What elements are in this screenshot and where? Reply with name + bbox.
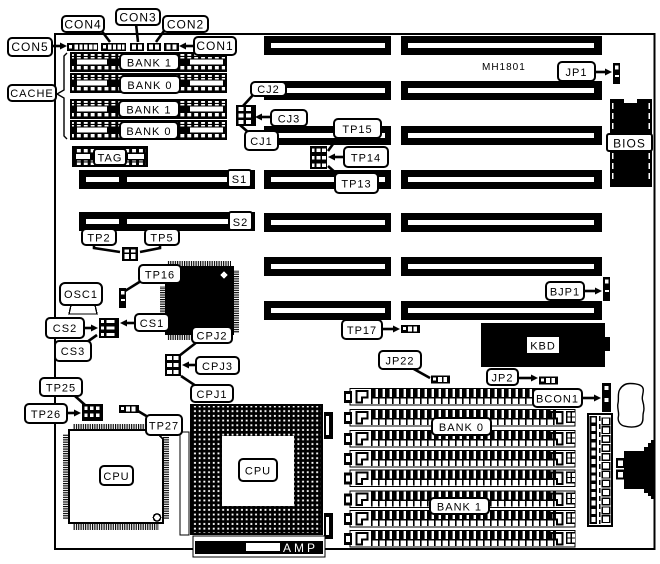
svg-text:CJ2: CJ2 bbox=[257, 84, 280, 96]
svg-text:AMP: AMP bbox=[283, 541, 318, 555]
svg-text:JP22: JP22 bbox=[385, 356, 414, 368]
svg-text:TP5: TP5 bbox=[150, 233, 173, 245]
svg-text:BANK 0: BANK 0 bbox=[439, 422, 484, 434]
svg-text:CACHE: CACHE bbox=[10, 88, 54, 100]
svg-text:TP25: TP25 bbox=[46, 383, 76, 395]
svg-text:CPJ1: CPJ1 bbox=[197, 389, 228, 401]
svg-text:CON2: CON2 bbox=[167, 18, 204, 32]
svg-text:S1: S1 bbox=[232, 174, 247, 186]
svg-text:CJ3: CJ3 bbox=[278, 114, 301, 126]
svg-text:TAG: TAG bbox=[98, 153, 123, 165]
svg-text:BANK 1: BANK 1 bbox=[437, 502, 482, 514]
svg-text:KBD: KBD bbox=[530, 341, 556, 353]
svg-text:MH1801: MH1801 bbox=[482, 62, 526, 73]
svg-text:CPJ2: CPJ2 bbox=[197, 331, 228, 343]
svg-text:TP27: TP27 bbox=[149, 421, 179, 433]
svg-text:BCON1: BCON1 bbox=[536, 394, 579, 406]
svg-text:BANK 0: BANK 0 bbox=[127, 80, 172, 92]
svg-text:CS1: CS1 bbox=[140, 318, 164, 330]
svg-text:JP1: JP1 bbox=[566, 67, 588, 79]
svg-text:CS3: CS3 bbox=[61, 346, 85, 358]
svg-text:CPU: CPU bbox=[245, 466, 271, 478]
svg-text:CON4: CON4 bbox=[64, 18, 101, 32]
svg-text:TP15: TP15 bbox=[342, 124, 372, 136]
svg-text:TP13: TP13 bbox=[341, 179, 371, 191]
svg-text:JP2: JP2 bbox=[492, 373, 514, 385]
svg-text:BANK 0: BANK 0 bbox=[126, 126, 171, 138]
svg-text:CS2: CS2 bbox=[53, 323, 77, 335]
svg-text:BANK 1: BANK 1 bbox=[127, 58, 172, 70]
svg-text:OSC1: OSC1 bbox=[64, 289, 98, 301]
svg-text:S2: S2 bbox=[233, 217, 248, 229]
svg-text:CON1: CON1 bbox=[196, 39, 233, 53]
svg-text:CPU: CPU bbox=[103, 471, 129, 483]
svg-text:CON5: CON5 bbox=[11, 40, 48, 54]
svg-text:CJ1: CJ1 bbox=[250, 136, 273, 148]
svg-text:TP17: TP17 bbox=[347, 325, 377, 337]
svg-text:TP26: TP26 bbox=[31, 409, 61, 421]
svg-text:TP2: TP2 bbox=[87, 233, 110, 245]
svg-text:BIOS: BIOS bbox=[613, 137, 646, 151]
svg-text:BJP1: BJP1 bbox=[550, 287, 580, 299]
svg-text:TP14: TP14 bbox=[351, 153, 381, 165]
svg-text:TP16: TP16 bbox=[145, 270, 175, 282]
svg-text:CON3: CON3 bbox=[119, 11, 156, 25]
svg-text:CPJ3: CPJ3 bbox=[202, 361, 233, 373]
svg-text:BANK 1: BANK 1 bbox=[126, 105, 171, 117]
